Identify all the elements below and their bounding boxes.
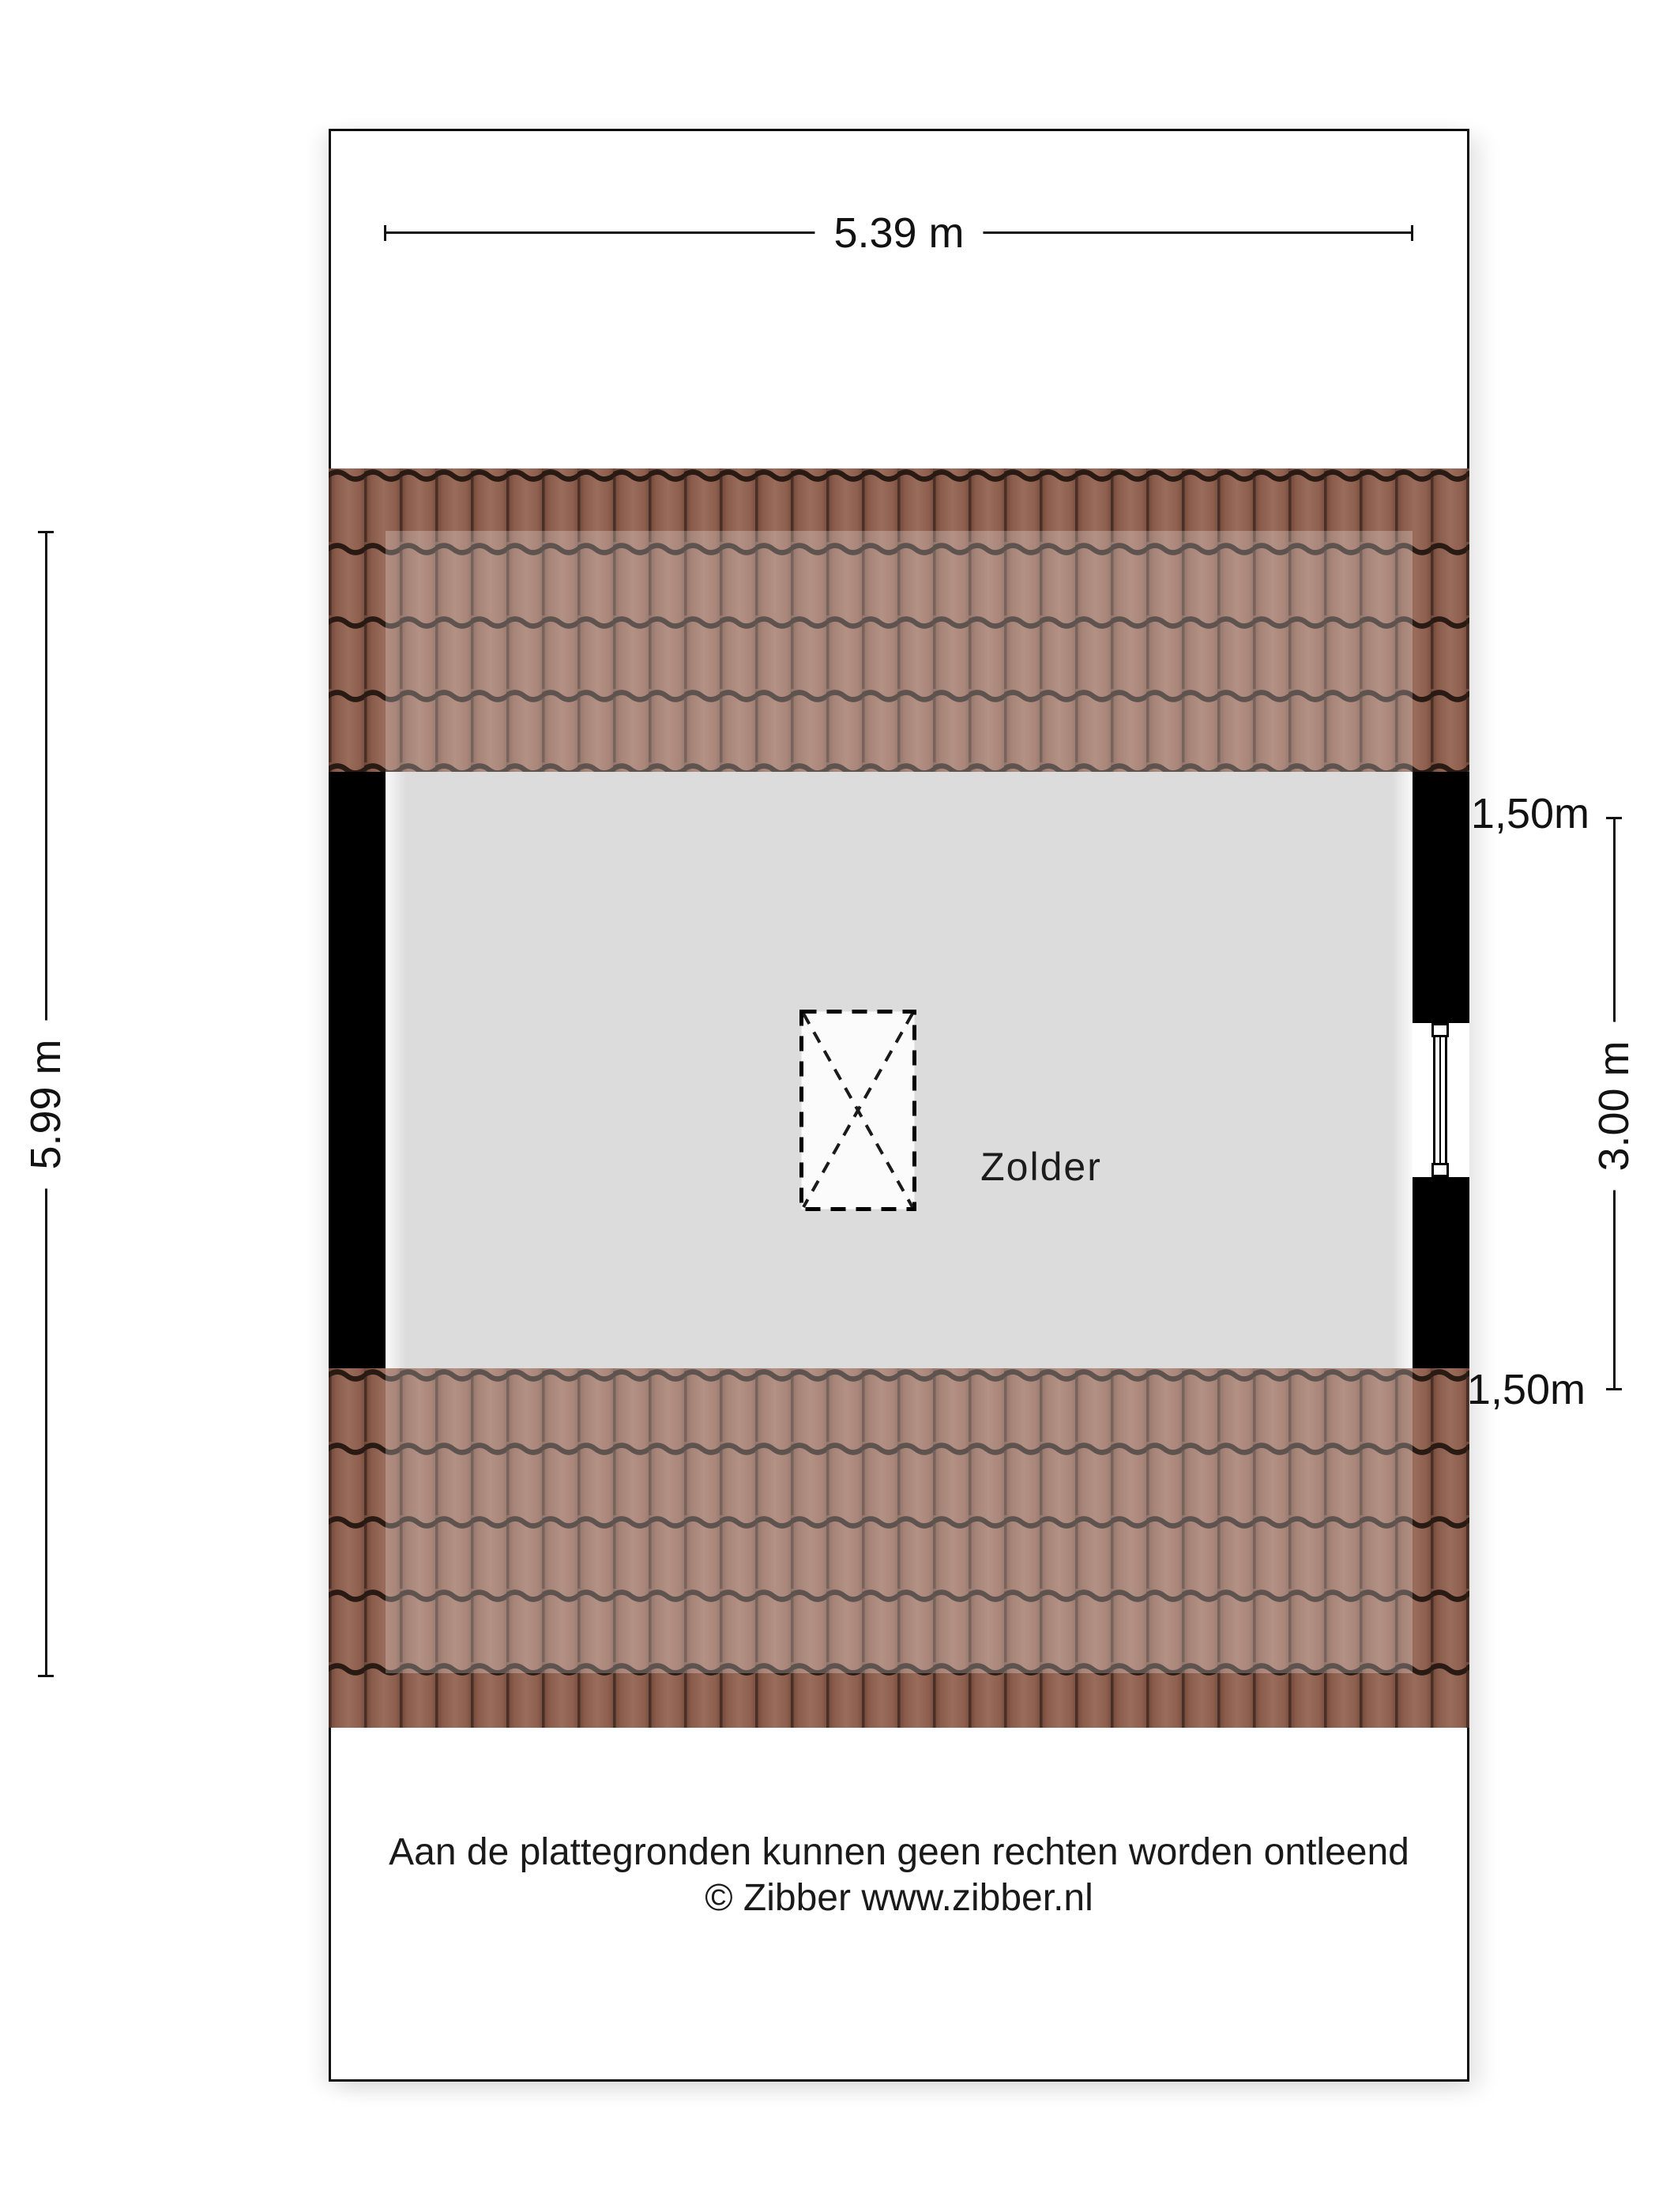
window-frame-top-icon [1431, 1023, 1449, 1037]
wall-left [329, 772, 386, 1368]
roof-top-highlight-overlay [386, 531, 1413, 772]
dimension-label-right: 3.00 m [1589, 1021, 1639, 1190]
window-frame-bottom-icon [1431, 1163, 1449, 1177]
ceiling-height-label-top: 1,50m [1471, 790, 1589, 837]
dimension-tick [38, 1675, 54, 1677]
dimension-tick [1606, 1388, 1622, 1390]
footer-disclaimer: Aan de plattegronden kunnen geen rechten… [329, 1831, 1469, 1874]
dimension-tick [38, 531, 54, 533]
roof-band-top [329, 468, 1469, 772]
dimension-tick [384, 225, 386, 241]
room-label: Zolder [980, 1144, 1102, 1190]
dimension-tick [1606, 817, 1622, 819]
floor-light-gradient-left [386, 772, 406, 1368]
footer: Aan de plattegronden kunnen geen rechten… [329, 1831, 1469, 1920]
ceiling-height-label-bottom: 1,50m [1467, 1366, 1586, 1413]
wall-right-lower [1413, 1177, 1469, 1368]
window-glass-icon [1433, 1037, 1447, 1163]
floor-light-gradient-right [1392, 772, 1413, 1368]
dimension-tick [1411, 225, 1413, 241]
wall-right-upper [1413, 772, 1469, 1023]
roof-bottom-highlight-overlay [386, 1368, 1413, 1673]
stair-void [799, 1010, 916, 1211]
footer-copyright: © Zibber www.zibber.nl [329, 1877, 1469, 1920]
dimension-label-left: 5.99 m [21, 1020, 71, 1188]
dimension-label-top: 5.39 m [814, 208, 983, 258]
roof-band-bottom [329, 1368, 1469, 1728]
